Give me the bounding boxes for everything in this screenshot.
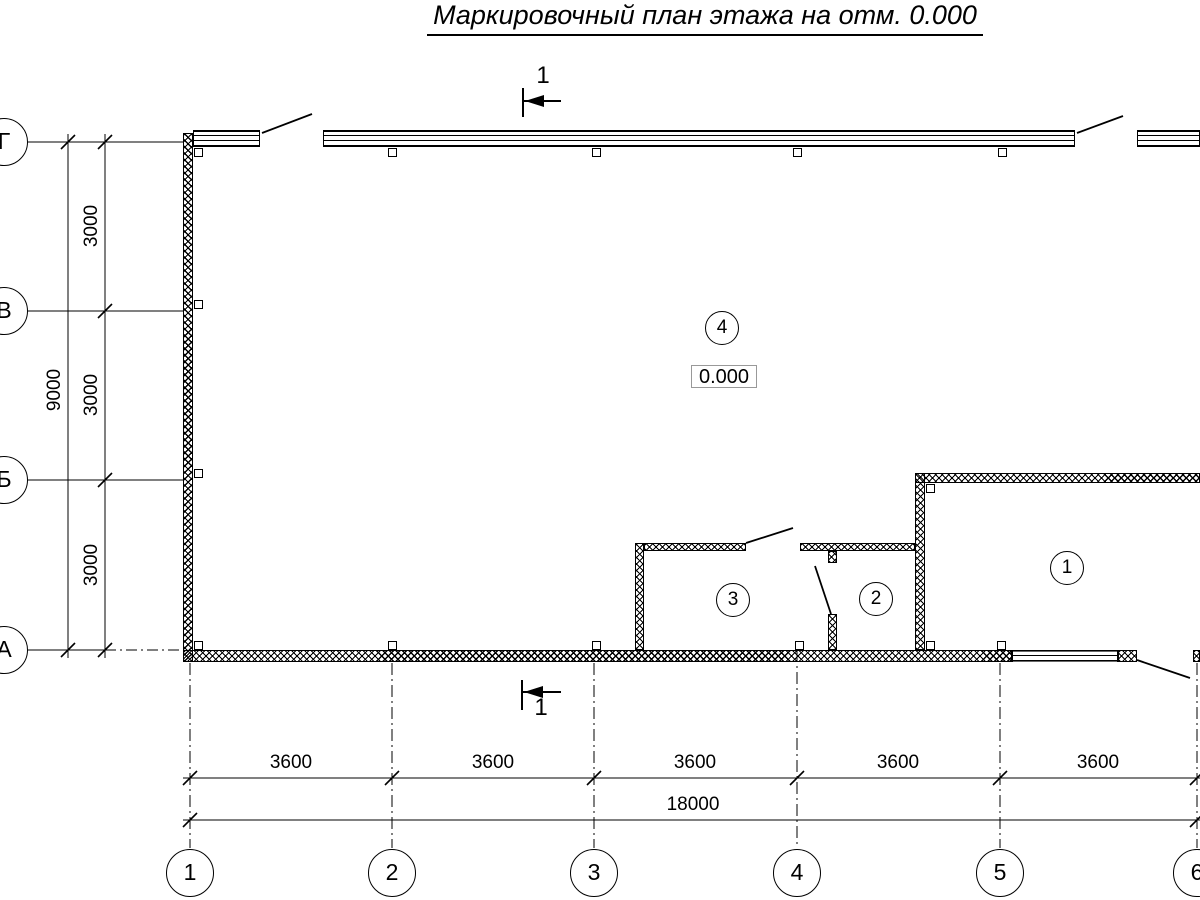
dimension-row-bay-3: 3000 <box>81 525 101 605</box>
column-marker <box>926 484 935 493</box>
room-circle-2: 2 <box>859 582 893 616</box>
room-circle-1: 1 <box>1050 551 1084 585</box>
grid-bubble-col-2: 2 <box>368 849 416 897</box>
column-marker <box>194 148 203 157</box>
grid-bubble-col-1: 1 <box>166 849 214 897</box>
section-mark-top <box>523 88 561 117</box>
window-band-top-2 <box>323 130 1075 147</box>
door-leaf <box>746 528 793 543</box>
floor-plan-drawing: Маркировочный план этажа на отм. 0.000 1… <box>0 0 1200 900</box>
column-marker <box>592 148 601 157</box>
dimension-bay-4: 3600 <box>858 752 938 774</box>
room-circle-4: 4 <box>705 311 739 345</box>
dimension-row-bay-1: 3000 <box>81 186 101 266</box>
dimension-bay-3: 3600 <box>655 752 735 774</box>
elevation-mark: 0.000 <box>691 365 757 388</box>
wall-bottom-door-jamb <box>1118 650 1137 662</box>
room-circle-3: 3 <box>716 583 750 617</box>
wall-room3-left <box>635 543 644 650</box>
wall-room1-left <box>915 473 925 650</box>
section-label-bottom: 1 <box>526 694 556 722</box>
column-marker <box>997 641 1006 650</box>
grid-bubble-col-3: 3 <box>570 849 618 897</box>
column-marker <box>793 148 802 157</box>
wall-bottom-right-stub <box>1193 650 1200 662</box>
window-band-bottom <box>1012 650 1118 662</box>
dimension-total-width: 18000 <box>653 794 733 816</box>
window-band-top-1 <box>193 130 260 147</box>
column-marker <box>998 148 1007 157</box>
wall-room3-top <box>644 543 746 551</box>
grid-bubble-col-5: 5 <box>976 849 1024 897</box>
column-marker <box>388 148 397 157</box>
wall-left-exterior <box>183 133 193 662</box>
dimension-bay-2: 3600 <box>453 752 533 774</box>
wall-bottom-exterior <box>183 650 1012 662</box>
drawing-title-text: Маркировочный план этажа на отм. 0.000 <box>427 0 983 36</box>
grid-bubble-col-4: 4 <box>773 849 821 897</box>
column-marker <box>194 469 203 478</box>
window-band-top-3 <box>1137 130 1200 147</box>
column-marker <box>592 641 601 650</box>
dimension-bay-5: 3600 <box>1058 752 1138 774</box>
dimension-bay-1: 3600 <box>251 752 331 774</box>
dimension-row-bay-2: 3000 <box>81 355 101 435</box>
column-marker <box>795 641 804 650</box>
door-leaf <box>815 566 831 614</box>
column-marker <box>388 641 397 650</box>
column-marker <box>194 300 203 309</box>
grid-axis-lines <box>190 650 1197 848</box>
section-label-top: 1 <box>528 62 558 90</box>
wall-room1-top <box>915 473 1200 483</box>
column-marker <box>926 641 935 650</box>
wall-room2-door-stub-lower <box>828 614 837 650</box>
wall-room2-door-stub-upper <box>828 551 837 563</box>
door-leaf <box>1137 660 1190 678</box>
wall-room2-top <box>800 543 915 551</box>
column-marker <box>194 641 203 650</box>
door-leaf <box>1077 116 1123 133</box>
door-leaf <box>262 114 312 133</box>
drawing-title: Маркировочный план этажа на отм. 0.000 <box>300 0 1110 36</box>
dimension-total-height: 9000 <box>44 350 64 430</box>
